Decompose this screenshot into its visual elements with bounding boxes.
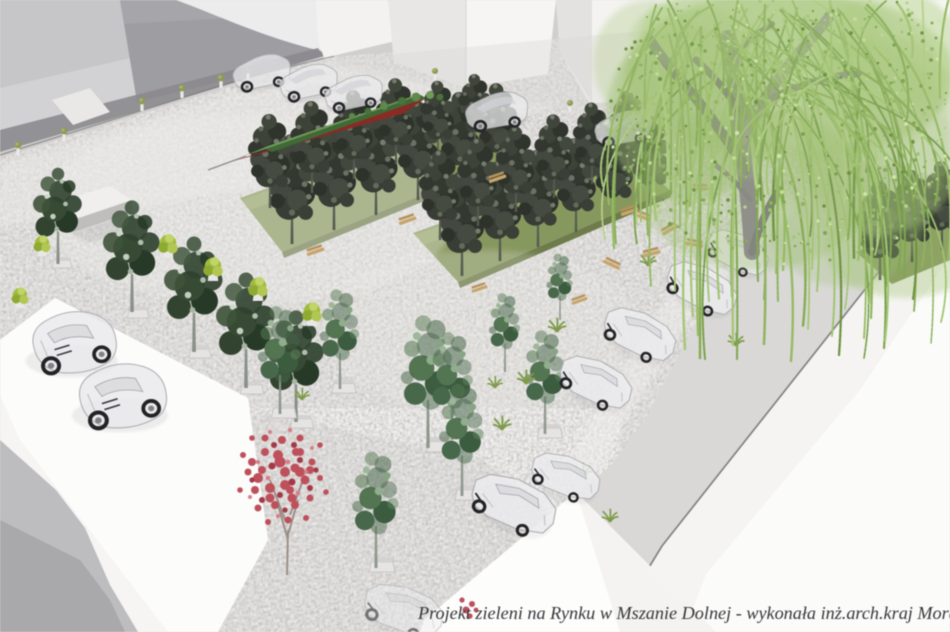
svg-text:Projekt zieleni na Rynku w Msz: Projekt zieleni na Rynku w Mszanie Dolne… [417, 603, 950, 623]
